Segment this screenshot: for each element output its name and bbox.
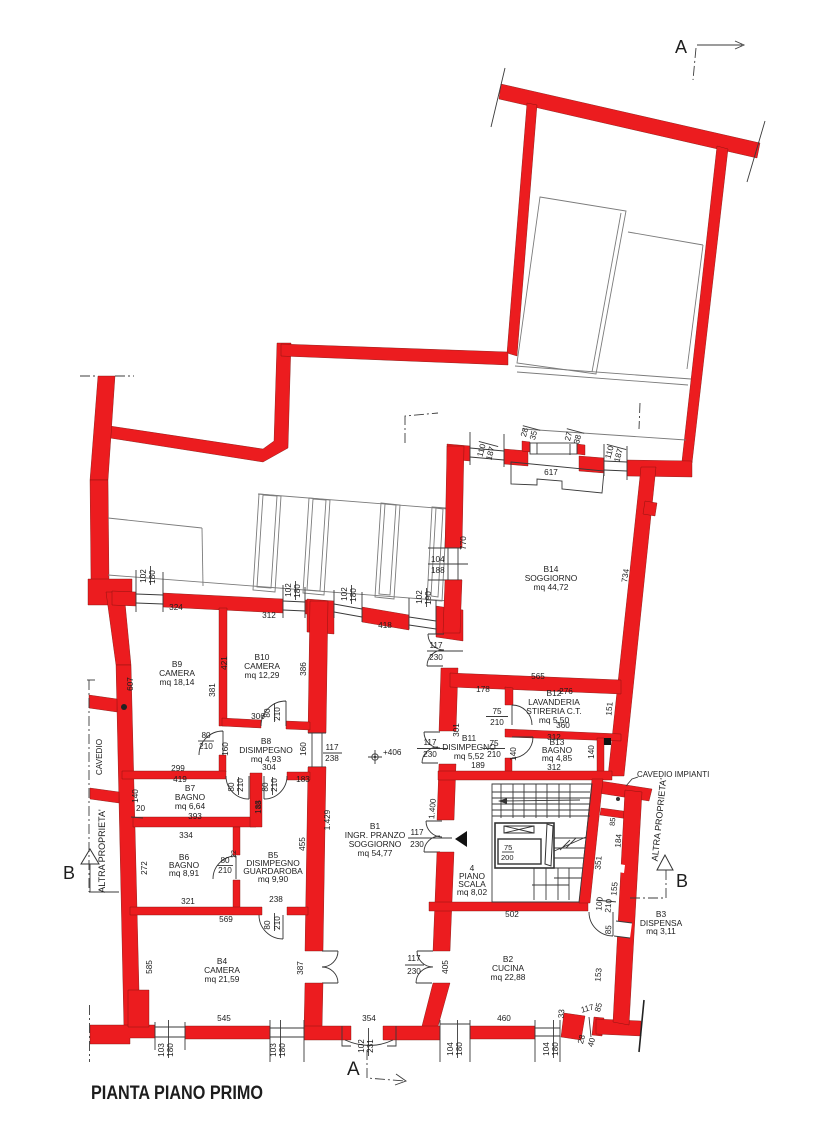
svg-text:102: 102 (357, 1039, 366, 1053)
svg-text:386: 386 (299, 662, 308, 676)
svg-text:188: 188 (431, 566, 445, 575)
svg-text:387: 387 (296, 961, 305, 975)
svg-text:210: 210 (487, 750, 501, 759)
svg-text:160: 160 (221, 742, 230, 756)
svg-text:75: 75 (504, 843, 512, 852)
svg-text:230: 230 (429, 653, 443, 662)
svg-text:102: 102 (415, 590, 424, 604)
svg-text:140: 140 (509, 747, 518, 761)
svg-text:770: 770 (459, 536, 468, 550)
svg-text:117: 117 (429, 641, 442, 650)
svg-text:238: 238 (269, 895, 283, 904)
svg-text:419: 419 (173, 775, 187, 784)
svg-text:160: 160 (299, 742, 308, 756)
svg-text:117: 117 (325, 743, 338, 752)
svg-text:140: 140 (131, 789, 140, 803)
svg-text:80: 80 (263, 920, 272, 930)
svg-text:360: 360 (556, 721, 570, 730)
svg-text:321: 321 (181, 897, 195, 906)
svg-text:85: 85 (604, 924, 614, 934)
svg-text:272: 272 (140, 861, 149, 875)
svg-text:80: 80 (220, 856, 230, 865)
svg-text:103: 103 (269, 1043, 278, 1057)
svg-text:104: 104 (542, 1042, 551, 1056)
svg-text:PIANTA PIANO PRIMO: PIANTA PIANO PRIMO (91, 1082, 263, 1104)
svg-text:20: 20 (136, 804, 146, 813)
svg-text:mq 3,11: mq 3,11 (646, 926, 676, 936)
svg-text:301: 301 (452, 723, 461, 737)
svg-text:569: 569 (219, 915, 233, 924)
svg-text:460: 460 (497, 1014, 511, 1023)
svg-text:189: 189 (471, 761, 485, 770)
svg-text:mq 21,59: mq 21,59 (205, 974, 240, 984)
svg-text:180: 180 (278, 1043, 287, 1057)
svg-text:mq 44,72: mq 44,72 (534, 582, 569, 592)
svg-text:230: 230 (423, 750, 437, 759)
svg-text:180: 180 (293, 584, 302, 598)
svg-text:mq 5,52: mq 5,52 (454, 751, 485, 761)
svg-text:184: 184 (613, 833, 623, 848)
svg-text:210: 210 (490, 718, 504, 727)
svg-text:104: 104 (431, 555, 445, 564)
svg-text:CAVEDIO IMPIANTI: CAVEDIO IMPIANTI (637, 770, 709, 779)
svg-text:210: 210 (273, 916, 282, 930)
svg-text:312: 312 (262, 611, 276, 620)
svg-text:210: 210 (199, 742, 213, 751)
svg-text:+406: +406 (383, 748, 402, 757)
svg-text:75: 75 (492, 707, 502, 716)
svg-text:1.400: 1.400 (427, 798, 438, 820)
svg-text:210: 210 (603, 898, 613, 913)
svg-text:276: 276 (559, 687, 573, 696)
svg-text:A: A (675, 37, 687, 57)
svg-text:607: 607 (126, 677, 135, 691)
svg-text:B: B (676, 871, 688, 891)
svg-text:238: 238 (325, 754, 339, 763)
svg-text:mq 8,02: mq 8,02 (457, 887, 488, 897)
svg-text:102: 102 (284, 583, 293, 597)
svg-text:324: 324 (169, 603, 183, 612)
svg-text:299: 299 (171, 764, 185, 773)
svg-text:178: 178 (476, 685, 490, 694)
svg-text:545: 545 (217, 1014, 231, 1023)
svg-text:418: 418 (378, 621, 392, 630)
svg-text:180: 180 (166, 1043, 175, 1057)
svg-text:mq 22,88: mq 22,88 (491, 972, 526, 982)
svg-text:230: 230 (410, 840, 424, 849)
svg-text:180: 180 (349, 588, 358, 602)
svg-text:151: 151 (604, 701, 614, 716)
svg-text:104: 104 (446, 1042, 455, 1056)
svg-text:180: 180 (551, 1042, 560, 1056)
svg-text:117: 117 (407, 954, 420, 963)
svg-text:183: 183 (296, 775, 310, 784)
svg-text:351: 351 (593, 855, 603, 870)
svg-text:180: 180 (455, 1042, 464, 1056)
svg-text:312: 312 (547, 763, 561, 772)
svg-text:102: 102 (340, 587, 349, 601)
svg-text:28: 28 (256, 801, 263, 809)
svg-text:140: 140 (587, 745, 596, 759)
svg-text:80: 80 (201, 731, 211, 740)
svg-text:33: 33 (557, 1008, 567, 1018)
svg-text:mq 6,64: mq 6,64 (175, 801, 206, 811)
svg-text:117: 117 (423, 738, 436, 747)
svg-text:ALTRA PROPRIETA': ALTRA PROPRIETA' (97, 809, 107, 893)
svg-text:180: 180 (148, 570, 157, 584)
svg-text:155: 155 (609, 881, 619, 896)
svg-text:190: 190 (424, 591, 433, 605)
svg-text:421: 421 (220, 656, 229, 670)
svg-text:117: 117 (410, 828, 423, 837)
svg-text:153: 153 (593, 967, 603, 982)
svg-text:334: 334 (179, 831, 193, 840)
svg-text:230: 230 (407, 967, 421, 976)
svg-text:1.429: 1.429 (323, 809, 332, 830)
svg-text:mq 18,14: mq 18,14 (160, 677, 195, 687)
svg-text:103: 103 (157, 1043, 166, 1057)
svg-text:75: 75 (489, 739, 499, 748)
svg-text:mq 4,85: mq 4,85 (542, 753, 573, 763)
svg-text:mq 9,90: mq 9,90 (258, 874, 289, 884)
svg-text:CAVEDIO: CAVEDIO (95, 739, 104, 775)
svg-text:231: 231 (366, 1039, 375, 1053)
svg-text:312: 312 (547, 733, 561, 742)
svg-text:565: 565 (531, 672, 545, 681)
svg-text:80: 80 (227, 782, 236, 792)
svg-text:A: A (347, 1059, 360, 1080)
svg-text:381: 381 (208, 683, 217, 697)
svg-text:393: 393 (188, 812, 202, 821)
svg-text:mq 12,29: mq 12,29 (245, 670, 280, 680)
svg-text:455: 455 (298, 837, 307, 851)
svg-text:585: 585 (145, 960, 154, 974)
svg-text:354: 354 (362, 1014, 376, 1023)
svg-text:304: 304 (262, 763, 276, 772)
svg-text:502: 502 (505, 910, 519, 919)
svg-text:85: 85 (608, 817, 618, 826)
svg-text:405: 405 (441, 960, 450, 974)
svg-text:80: 80 (261, 782, 270, 792)
svg-text:617: 617 (544, 468, 558, 477)
svg-text:102: 102 (139, 569, 148, 583)
svg-text:200: 200 (501, 853, 514, 862)
svg-text:mq 8,91: mq 8,91 (169, 868, 200, 878)
svg-text:210: 210 (273, 707, 282, 721)
svg-text:22: 22 (231, 850, 238, 858)
svg-text:210: 210 (218, 866, 232, 875)
svg-text:210: 210 (236, 778, 245, 792)
svg-text:80: 80 (263, 708, 272, 718)
svg-text:B: B (63, 863, 75, 883)
svg-text:mq 54,77: mq 54,77 (358, 848, 393, 858)
svg-text:210: 210 (270, 778, 279, 792)
